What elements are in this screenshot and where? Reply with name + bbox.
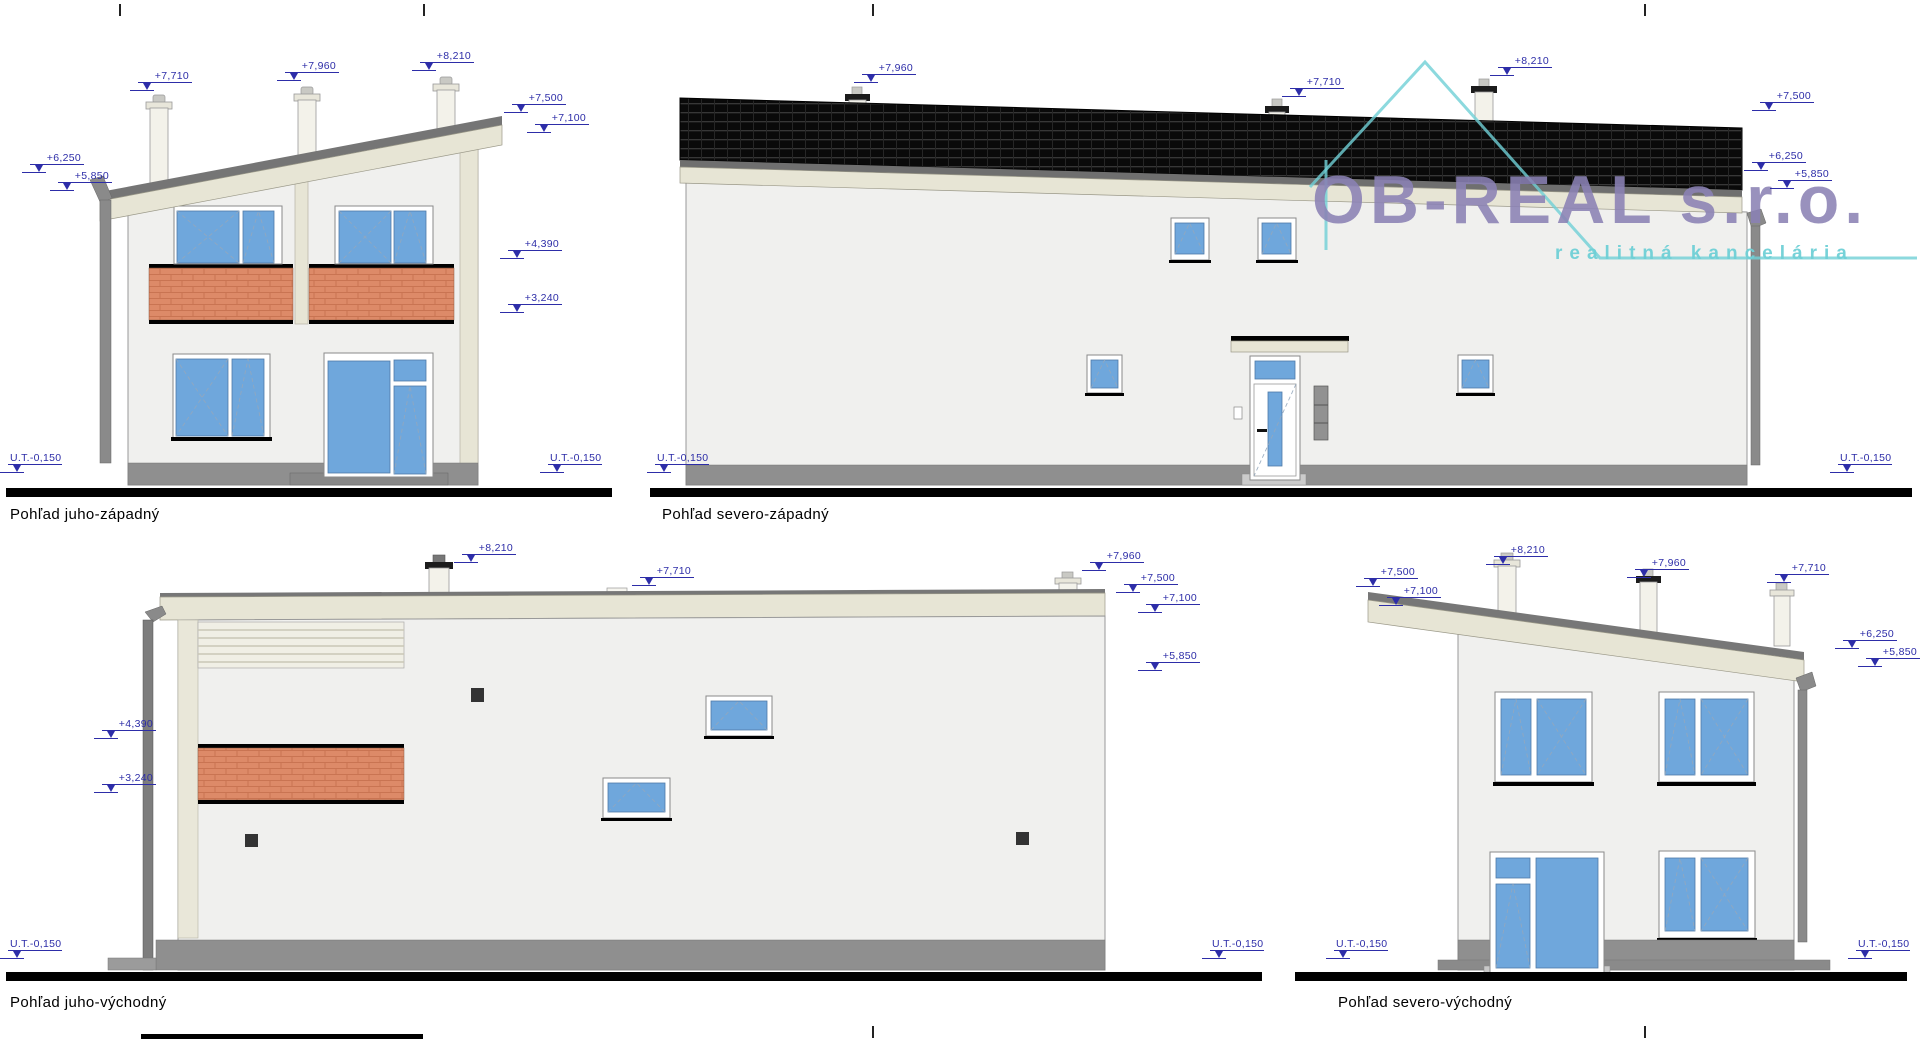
level-value: +5,850 — [1866, 646, 1920, 659]
level-marker: +7,500 — [1124, 572, 1178, 585]
nw-entry-door — [1250, 356, 1300, 480]
sw-terrace-door — [324, 353, 433, 477]
se-ground-line — [6, 972, 1262, 981]
level-value: +7,500 — [512, 92, 566, 105]
level-value: +7,710 — [1775, 562, 1829, 575]
level-marker: +5,850 — [58, 170, 112, 183]
level-value: +7,710 — [1290, 76, 1344, 89]
level-value: +3,240 — [102, 772, 156, 785]
ne-lower-window — [1657, 851, 1757, 942]
terrain-level-marker: U.T.-0,150 — [8, 938, 62, 951]
level-value: +7,710 — [138, 70, 192, 83]
nw-ground-line — [650, 488, 1912, 497]
crop-mark — [119, 4, 121, 16]
level-value: +7,100 — [1146, 592, 1200, 605]
level-value: +8,210 — [1494, 544, 1548, 557]
level-marker: +8,210 — [420, 50, 474, 63]
se-plinth — [108, 940, 1105, 970]
level-marker: +7,960 — [1090, 550, 1144, 563]
level-marker: +4,390 — [508, 238, 562, 251]
elevation-title-se: Pohľad juho-východný — [10, 994, 167, 1011]
level-marker: +8,210 — [1494, 544, 1548, 557]
se-brick-band — [198, 744, 404, 804]
level-marker: +7,100 — [1387, 585, 1441, 598]
se-roof — [160, 589, 1105, 620]
crop-mark — [1644, 4, 1646, 16]
level-value: +4,390 — [508, 238, 562, 251]
level-value: +6,250 — [30, 152, 84, 165]
terrain-level-marker: U.T.-0,150 — [548, 452, 602, 465]
level-value: +7,960 — [285, 60, 339, 73]
logo-tagline: realitná kancelária — [1555, 243, 1854, 265]
terrain-level-marker: U.T.-0,150 — [655, 452, 709, 465]
level-value: U.T.-0,150 — [8, 452, 62, 465]
level-marker: +3,240 — [102, 772, 156, 785]
crop-mark — [423, 4, 425, 16]
level-value: +7,960 — [1090, 550, 1144, 563]
level-value: U.T.-0,150 — [1334, 938, 1388, 951]
level-marker: +7,710 — [1775, 562, 1829, 575]
level-marker: +8,210 — [462, 542, 516, 555]
level-marker: +5,850 — [1146, 650, 1200, 663]
level-marker: +7,500 — [512, 92, 566, 105]
sw-ground-line — [6, 488, 612, 497]
nw-doorbell-switch — [1234, 407, 1242, 419]
level-value: U.T.-0,150 — [1838, 452, 1892, 465]
elevation-se: +8,210 +7,710 +7,960 +7,500 +7,100 +5,85… — [0, 540, 1280, 1040]
ne-ground-line — [1295, 972, 1907, 981]
level-marker: +4,390 — [102, 718, 156, 731]
level-value: +4,390 — [102, 718, 156, 731]
elevation-title-nw: Pohľad severo-západný — [662, 506, 829, 523]
nw-entry-canopy — [1231, 336, 1349, 352]
level-marker: +6,250 — [30, 152, 84, 165]
level-value: +8,210 — [420, 50, 474, 63]
se-downpipe — [143, 606, 166, 970]
level-value: U.T.-0,150 — [1856, 938, 1910, 951]
level-value: +7,500 — [1124, 572, 1178, 585]
level-value: +7,500 — [1760, 90, 1814, 103]
level-value: +7,710 — [640, 565, 694, 578]
level-marker: +8,210 — [1498, 55, 1552, 68]
level-marker: +3,240 — [508, 292, 562, 305]
sw-drawing — [0, 40, 620, 540]
level-marker: +6,250 — [1752, 150, 1806, 163]
level-marker: +6,250 — [1843, 628, 1897, 641]
level-marker: +5,850 — [1778, 168, 1832, 181]
level-value: +7,100 — [1387, 585, 1441, 598]
level-value: +7,960 — [862, 62, 916, 75]
level-value: +6,250 — [1752, 150, 1806, 163]
level-marker: +7,960 — [285, 60, 339, 73]
level-value: +8,210 — [1498, 55, 1552, 68]
level-marker: +7,100 — [535, 112, 589, 125]
level-value: +7,500 — [1364, 566, 1418, 579]
ne-downpipe — [1796, 672, 1816, 942]
level-value: +6,250 — [1843, 628, 1897, 641]
terrain-level-marker: U.T.-0,150 — [1334, 938, 1388, 951]
sw-downpipe — [90, 176, 112, 463]
elevation-title-sw: Pohľad juho-západný — [10, 506, 160, 523]
level-value: U.T.-0,150 — [8, 938, 62, 951]
terrain-level-marker: U.T.-0,150 — [1838, 452, 1892, 465]
level-marker: +7,960 — [862, 62, 916, 75]
se-roller-shutter — [198, 622, 404, 668]
elevation-sw: +7,710 +7,960 +8,210 +7,500 +7,100 +6,25… — [0, 40, 620, 540]
level-value: U.T.-0,150 — [548, 452, 602, 465]
level-value: +7,960 — [1635, 557, 1689, 570]
crop-mark — [872, 4, 874, 16]
ne-drawing — [1290, 540, 1920, 1040]
level-marker: +7,500 — [1364, 566, 1418, 579]
level-marker: +7,960 — [1635, 557, 1689, 570]
elevation-ne: +7,500 +7,100 +8,210 +7,960 +7,710 +6,25… — [1290, 540, 1920, 1040]
elevation-nw: OB-REAL s.r.o. realitná kancelária +7,96… — [630, 40, 1920, 540]
se-drawing — [0, 540, 1280, 1040]
level-value: +5,850 — [1146, 650, 1200, 663]
ne-terrace-door — [1484, 852, 1610, 974]
level-marker: +7,710 — [138, 70, 192, 83]
level-value: +3,240 — [508, 292, 562, 305]
level-value: U.T.-0,150 — [655, 452, 709, 465]
terrain-level-marker: U.T.-0,150 — [1856, 938, 1910, 951]
terrain-level-marker: U.T.-0,150 — [1210, 938, 1264, 951]
level-marker: +7,500 — [1760, 90, 1814, 103]
nw-meter-box — [1314, 386, 1328, 440]
level-value: U.T.-0,150 — [1210, 938, 1264, 951]
level-value: +7,100 — [535, 112, 589, 125]
level-value: +5,850 — [1778, 168, 1832, 181]
nw-plinth — [686, 465, 1747, 485]
level-marker: +7,710 — [640, 565, 694, 578]
terrain-level-marker: U.T.-0,150 — [8, 452, 62, 465]
level-marker: +7,710 — [1290, 76, 1344, 89]
elevation-title-ne: Pohľad severo-východný — [1338, 994, 1512, 1011]
level-value: +8,210 — [462, 542, 516, 555]
level-marker: +5,850 — [1866, 646, 1920, 659]
level-value: +5,850 — [58, 170, 112, 183]
sw-lower-window — [171, 354, 272, 441]
nw-drawing — [630, 40, 1920, 540]
drawing-sheet: +7,710 +7,960 +8,210 +7,500 +7,100 +6,25… — [0, 0, 1920, 1040]
level-marker: +7,100 — [1146, 592, 1200, 605]
